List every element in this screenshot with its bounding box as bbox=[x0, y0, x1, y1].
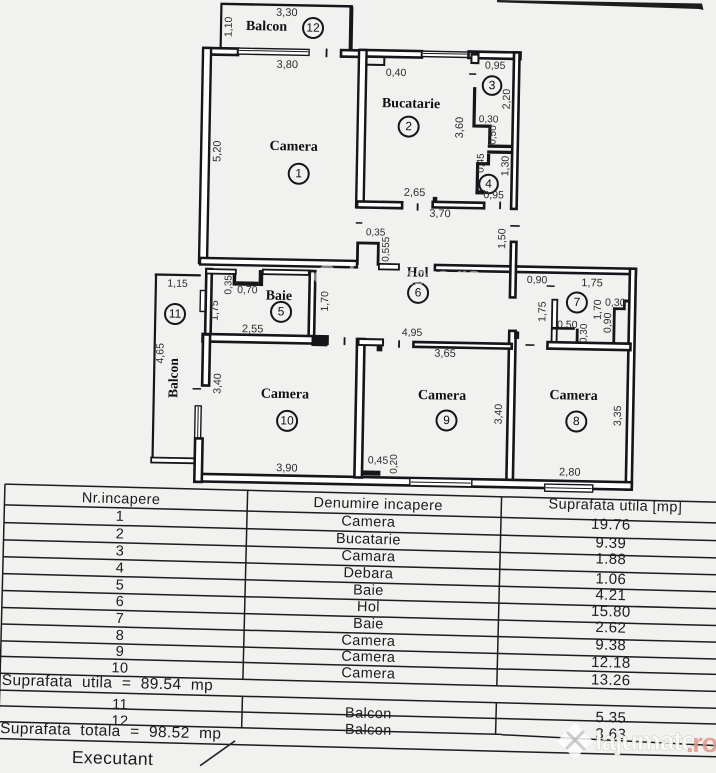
svg-text:Camera: Camera bbox=[418, 388, 466, 404]
svg-text:0,20: 0,20 bbox=[389, 454, 400, 474]
svg-text:0,95: 0,95 bbox=[485, 60, 506, 72]
svg-text:3,65: 3,65 bbox=[434, 348, 456, 360]
svg-text:3,70: 3,70 bbox=[429, 208, 451, 220]
svg-text:3,90: 3,90 bbox=[276, 462, 298, 474]
svg-text:0,555: 0,555 bbox=[381, 236, 392, 262]
svg-text:19.76: 19.76 bbox=[591, 516, 631, 534]
svg-text:Debara: Debara bbox=[343, 565, 394, 582]
svg-text:8: 8 bbox=[116, 628, 125, 644]
svg-text:3,40: 3,40 bbox=[212, 373, 224, 394]
svg-text:0,50: 0,50 bbox=[488, 125, 499, 145]
svg-text:4.21: 4.21 bbox=[595, 586, 626, 604]
svg-text:0,30: 0,30 bbox=[479, 114, 499, 125]
svg-text:9.39: 9.39 bbox=[595, 534, 626, 552]
svg-text:Camera: Camera bbox=[341, 633, 396, 650]
svg-text:1,75: 1,75 bbox=[209, 300, 221, 321]
svg-text:0,40: 0,40 bbox=[386, 67, 407, 79]
svg-text:Hol: Hol bbox=[357, 599, 380, 616]
svg-text:9: 9 bbox=[116, 644, 125, 660]
svg-text:Camera: Camera bbox=[341, 649, 396, 666]
svg-text:Camera: Camera bbox=[549, 388, 597, 404]
svg-text:Balcon: Balcon bbox=[345, 705, 392, 722]
svg-text:Camera: Camera bbox=[341, 514, 396, 531]
svg-text:3,30: 3,30 bbox=[276, 7, 298, 19]
svg-text:10: 10 bbox=[280, 413, 294, 427]
svg-text:.ro: .ro bbox=[686, 728, 716, 758]
svg-text:2.62: 2.62 bbox=[595, 619, 626, 637]
svg-text:5.35: 5.35 bbox=[595, 709, 626, 727]
svg-text:0,45: 0,45 bbox=[476, 153, 487, 173]
svg-text:0,45: 0,45 bbox=[368, 454, 389, 466]
svg-text:0,30: 0,30 bbox=[605, 297, 626, 309]
svg-text:lajumate: lajumate bbox=[595, 726, 696, 756]
svg-text:1,30: 1,30 bbox=[499, 156, 511, 177]
svg-text:Suprafata utila [mp]: Suprafata utila [mp] bbox=[548, 496, 682, 515]
svg-text:1,10: 1,10 bbox=[223, 16, 235, 37]
svg-text:11: 11 bbox=[112, 697, 128, 713]
svg-text:3,35: 3,35 bbox=[612, 405, 624, 426]
svg-text:4,95: 4,95 bbox=[402, 327, 423, 339]
svg-text:Nr.incapere: Nr.incapere bbox=[82, 490, 161, 508]
svg-text:12.18: 12.18 bbox=[591, 654, 631, 672]
svg-text:0,90: 0,90 bbox=[602, 312, 614, 333]
svg-text:Balcon: Balcon bbox=[165, 357, 181, 398]
svg-text:Balcon: Balcon bbox=[345, 722, 392, 739]
svg-text:2: 2 bbox=[115, 526, 124, 542]
svg-text:0,95: 0,95 bbox=[483, 189, 504, 201]
svg-text:Camera: Camera bbox=[341, 665, 396, 682]
svg-text:2,80: 2,80 bbox=[559, 466, 581, 478]
svg-text:1: 1 bbox=[116, 509, 125, 525]
svg-text:0,30: 0,30 bbox=[579, 323, 590, 343]
svg-text:1: 1 bbox=[295, 166, 302, 180]
svg-text:5: 5 bbox=[115, 577, 124, 593]
svg-text:9: 9 bbox=[443, 413, 450, 427]
svg-text:9.38: 9.38 bbox=[595, 636, 626, 654]
svg-text:12: 12 bbox=[306, 20, 320, 34]
svg-text:1,75: 1,75 bbox=[581, 277, 603, 289]
svg-text:1,15: 1,15 bbox=[167, 278, 188, 290]
svg-text:0,70: 0,70 bbox=[237, 284, 258, 296]
svg-text:1,70: 1,70 bbox=[319, 291, 331, 312]
svg-text:6: 6 bbox=[116, 594, 125, 610]
svg-text:1,75: 1,75 bbox=[536, 301, 548, 322]
svg-text:Camera: Camera bbox=[261, 387, 309, 403]
svg-text:0.50: 0.50 bbox=[557, 319, 578, 331]
svg-text:3: 3 bbox=[116, 543, 125, 559]
svg-text:7: 7 bbox=[573, 295, 580, 309]
svg-text:Camera: Camera bbox=[269, 139, 317, 155]
svg-text:0,90: 0,90 bbox=[527, 274, 548, 286]
svg-text:13.26: 13.26 bbox=[591, 671, 631, 689]
svg-text:4,65: 4,65 bbox=[154, 343, 166, 364]
svg-text:2,55: 2,55 bbox=[242, 323, 264, 335]
svg-text:Bucatarie: Bucatarie bbox=[382, 96, 441, 112]
svg-text:Denumire incapere: Denumire incapere bbox=[313, 495, 443, 514]
svg-text:3,80: 3,80 bbox=[276, 59, 298, 71]
svg-text:Camara: Camara bbox=[341, 548, 396, 565]
svg-text:Baie: Baie bbox=[353, 582, 384, 599]
svg-text:5: 5 bbox=[278, 304, 285, 318]
svg-text:4: 4 bbox=[116, 560, 125, 576]
svg-text:8: 8 bbox=[573, 414, 580, 428]
svg-text:3,60: 3,60 bbox=[454, 117, 466, 139]
svg-text:3: 3 bbox=[489, 78, 496, 92]
svg-text:3,40: 3,40 bbox=[493, 404, 505, 425]
svg-text:1,50: 1,50 bbox=[496, 228, 508, 249]
svg-text:2,65: 2,65 bbox=[404, 187, 426, 199]
svg-text:lajumate.ro: lajumate.ro bbox=[348, 261, 482, 291]
svg-text:Baie: Baie bbox=[353, 616, 384, 633]
svg-text:Bucatarie: Bucatarie bbox=[336, 531, 401, 549]
svg-text:Executant: Executant bbox=[72, 747, 154, 768]
svg-text:Balcon: Balcon bbox=[246, 19, 288, 35]
svg-text:1.88: 1.88 bbox=[595, 550, 626, 568]
svg-text:2: 2 bbox=[405, 119, 412, 133]
svg-text:0,35: 0,35 bbox=[223, 275, 234, 295]
svg-text:7: 7 bbox=[116, 611, 125, 627]
svg-text:2,20: 2,20 bbox=[501, 89, 513, 110]
svg-text:5,20: 5,20 bbox=[211, 140, 223, 162]
svg-text:1.06: 1.06 bbox=[595, 570, 626, 588]
svg-text:11: 11 bbox=[169, 306, 182, 320]
